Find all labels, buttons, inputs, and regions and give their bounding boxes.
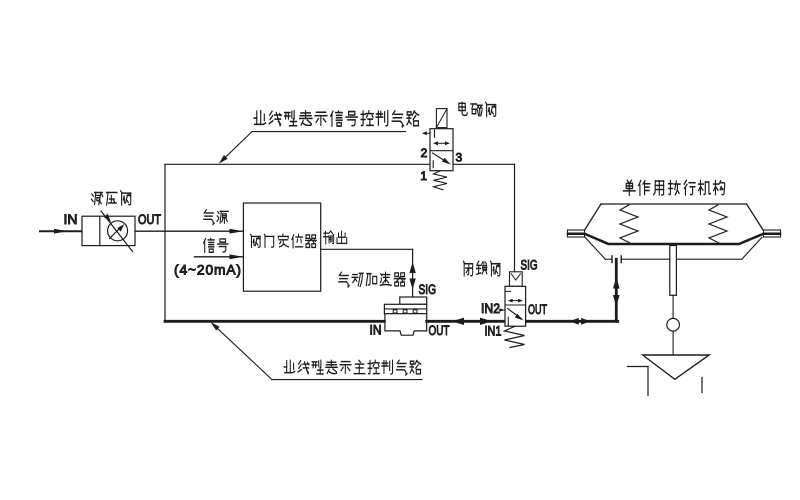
svg-text:OUT: OUT xyxy=(138,212,161,227)
svg-text:OUT: OUT xyxy=(429,323,450,338)
svg-text:3: 3 xyxy=(456,151,463,165)
svg-text:(4~20mA): (4~20mA) xyxy=(174,263,241,278)
svg-text:IN: IN xyxy=(370,323,382,338)
svg-text:SIG: SIG xyxy=(419,282,437,297)
svg-text:IN2: IN2 xyxy=(481,301,500,316)
svg-text:2: 2 xyxy=(421,146,428,160)
svg-text:IN: IN xyxy=(64,212,78,227)
svg-text:1: 1 xyxy=(420,169,427,183)
svg-text:OUT: OUT xyxy=(528,302,547,317)
svg-text:SIG: SIG xyxy=(521,258,538,273)
svg-text:IN1: IN1 xyxy=(485,324,502,339)
